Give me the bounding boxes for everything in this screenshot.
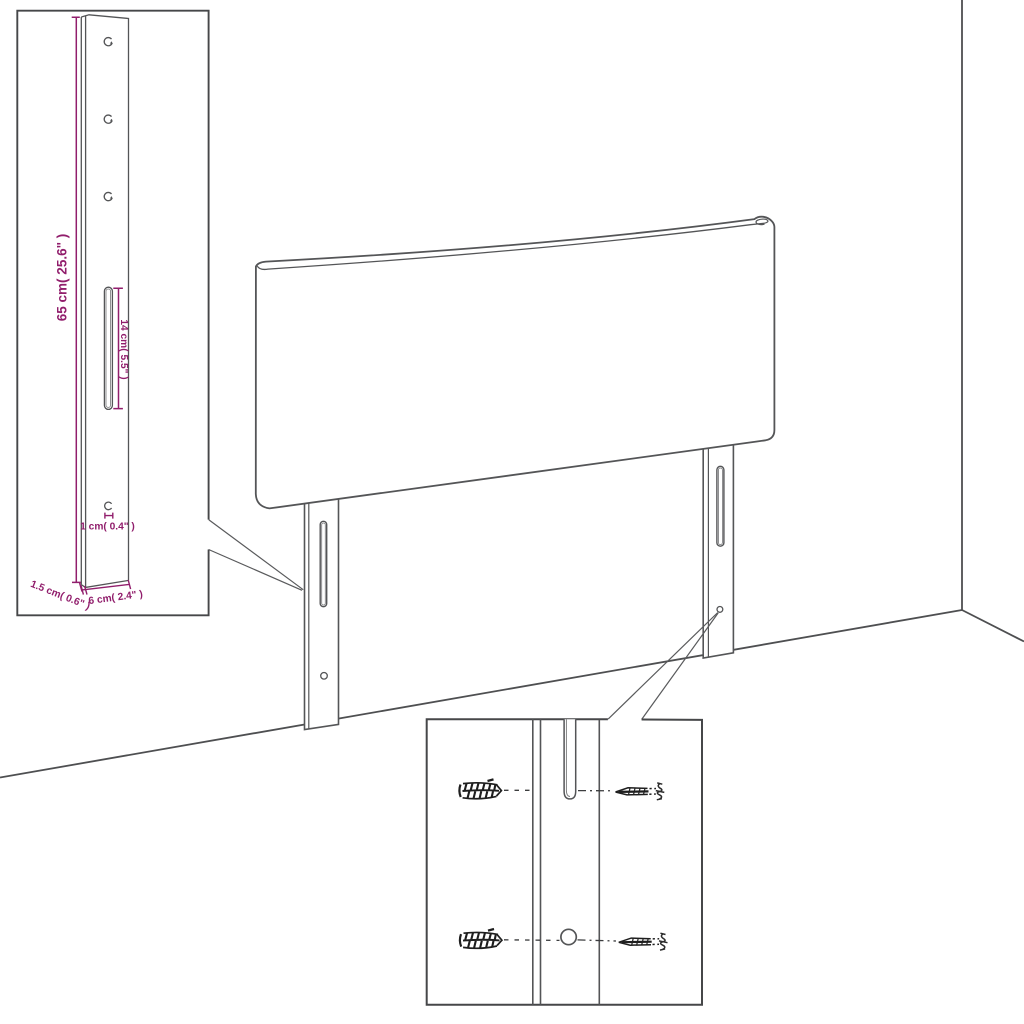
svg-text:1 cm( 0.4" ): 1 cm( 0.4" ) (80, 522, 135, 533)
svg-text:65 cm( 25.6" ): 65 cm( 25.6" ) (55, 234, 70, 321)
svg-text:14 cm( 5.5" ): 14 cm( 5.5" ) (118, 319, 129, 379)
